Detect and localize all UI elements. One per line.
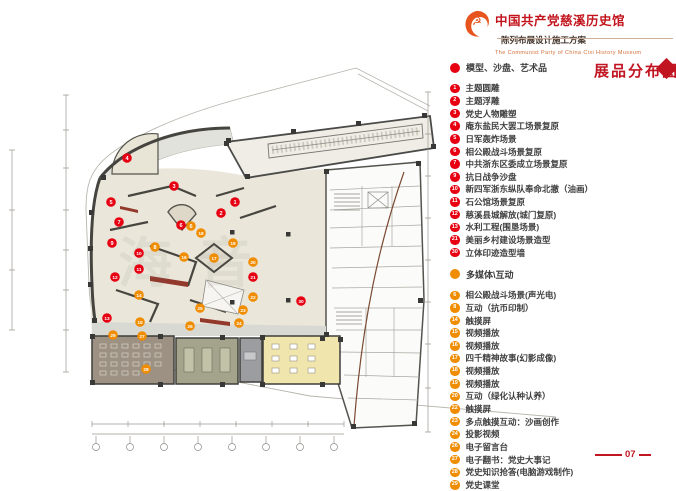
- plan-marker-13: 13: [102, 313, 112, 323]
- legend-item: 22触摸屏: [450, 403, 676, 416]
- legend-item: 18视频播放: [450, 365, 676, 378]
- plan-marker-29: 29: [108, 330, 118, 340]
- svg-text:27: 27: [139, 334, 145, 340]
- plan-marker-23: 23: [238, 305, 248, 315]
- page-title: 中国共产党慈溪历史馆: [495, 14, 625, 28]
- svg-text:20: 20: [250, 260, 256, 266]
- svg-text:15: 15: [137, 320, 143, 326]
- legend-item-badge: 18: [450, 366, 460, 376]
- legend-item-label: 四千精神故事(幻影成像): [466, 352, 557, 364]
- plan-marker-24: 24: [234, 318, 244, 328]
- legend-item-label: 庵东盐民大罢工场景复原: [466, 120, 560, 132]
- legend-item-badge: 8: [450, 303, 460, 313]
- legend-item-badge: 26: [450, 442, 460, 452]
- legend-item-label: 电子留言台: [466, 441, 509, 453]
- plan-marker-27: 27: [137, 331, 147, 341]
- legend-item-label: 互动（抗币印制）: [466, 302, 534, 314]
- legend-group-label: 模型、沙盘、艺术品: [466, 61, 547, 74]
- legend-item-label: 新四军浙东纵队奉命北撤（油画）: [466, 183, 594, 195]
- plan-marker-6: 6: [176, 220, 186, 230]
- svg-text:9: 9: [110, 241, 113, 247]
- legend-item: 6相公殿战斗场景(声光电): [450, 289, 676, 302]
- legend-item-label: 视频播放: [466, 365, 500, 377]
- legend-item: 8互动（抗币印制）: [450, 302, 676, 315]
- svg-text:11: 11: [136, 267, 141, 273]
- legend-item: 11石公馆场景复原: [450, 196, 676, 209]
- party-flame-emblem-icon: ☭: [462, 10, 492, 38]
- plan-marker-15: 15: [135, 317, 145, 327]
- legend-group-dot-icon: [450, 269, 460, 279]
- legend-item-label: 互动（绿化认种认养）: [466, 390, 551, 402]
- plan-marker-16: 16: [179, 252, 189, 262]
- legend-item: 17四千精神故事(幻影成像): [450, 352, 676, 365]
- legend-item-label: 党史课堂: [466, 479, 500, 491]
- legend-item: 6相公殿战斗场景复原: [450, 145, 676, 158]
- legend-item-badge: 17: [450, 354, 460, 364]
- plan-marker-25: 25: [195, 303, 205, 313]
- plan-marker-17: 17: [209, 253, 219, 263]
- plan-marker-5: 5: [106, 197, 116, 207]
- legend-item: 19视频播放: [450, 377, 676, 390]
- svg-text:29: 29: [110, 333, 116, 339]
- svg-text:22: 22: [250, 295, 256, 301]
- legend-item-label: 视频播放: [466, 327, 500, 339]
- legend-item: 16视频播放: [450, 340, 676, 353]
- svg-text:12: 12: [112, 275, 118, 281]
- legend-item-badge: 12: [450, 210, 460, 220]
- plan-marker-30: 30: [296, 296, 306, 306]
- legend-item-badge: 5: [450, 134, 460, 144]
- svg-text:24: 24: [236, 321, 242, 327]
- svg-text:19: 19: [230, 241, 236, 247]
- svg-text:18: 18: [198, 231, 204, 237]
- legend-item-label: 美丽乡村建设场景造型: [466, 234, 551, 246]
- legend-item-label: 主题浮雕: [466, 95, 500, 107]
- plan-marker-20: 20: [248, 257, 258, 267]
- plan-marker-7: 7: [114, 217, 124, 227]
- plan-marker-14: 14: [134, 290, 144, 300]
- plan-marker-2: 2: [216, 208, 226, 218]
- svg-text:1: 1: [233, 200, 236, 206]
- legend-item-label: 中共浙东区委成立场景复原: [466, 158, 568, 170]
- svg-text:3: 3: [172, 184, 175, 190]
- header: ☭ 中国共产党慈溪历史馆陈列布展设计施工方案 The Communist Par…: [462, 10, 676, 56]
- legend-item: 13水利工程(围垦场景): [450, 221, 676, 234]
- legend-item-label: 相公殿战斗场景(声光电): [466, 289, 557, 301]
- legend-item: 12慈溪县城解放(城门复原): [450, 208, 676, 221]
- legend-item-badge: 14: [450, 316, 460, 326]
- legend-item-label: 视频播放: [466, 378, 500, 390]
- legend-item-badge: 6: [450, 147, 460, 157]
- page-number-value: 07: [625, 450, 636, 460]
- legend-group-header: 模型、沙盘、艺术品: [450, 61, 676, 74]
- plan-marker-10: 10: [134, 248, 144, 258]
- legend-item-badge: 29: [450, 480, 460, 490]
- legend-item-badge: 9: [450, 172, 460, 182]
- legend-group-dot-icon: [450, 63, 460, 73]
- plan-marker-12: 12: [110, 272, 120, 282]
- legend-item: 24投影视频: [450, 428, 676, 441]
- header-rule: [497, 38, 673, 39]
- legend: 模型、沙盘、艺术品1主题圆雕2主题浮雕3党史人物雕塑4庵东盐民大罢工场景复原5日…: [450, 61, 676, 491]
- legend-item-badge: 15: [450, 328, 460, 338]
- svg-text:21: 21: [250, 275, 256, 281]
- plan-marker-11: 11: [134, 264, 144, 274]
- legend-item: 29党史课堂: [450, 479, 676, 491]
- legend-item-label: 触摸屏: [466, 403, 492, 415]
- page-title-english: The Communist Party of China Cixi Histor…: [495, 50, 676, 56]
- legend-item: 3党史人物雕塑: [450, 107, 676, 120]
- legend-item: 1主题圆雕: [450, 82, 676, 95]
- legend-item-badge: 22: [450, 404, 460, 414]
- legend-item-badge: 16: [450, 341, 460, 351]
- svg-text:26: 26: [187, 324, 193, 330]
- svg-text:23: 23: [240, 308, 246, 314]
- svg-text:7: 7: [117, 220, 120, 226]
- plan-marker-26: 26: [185, 321, 195, 331]
- page-number: 07: [595, 450, 651, 460]
- legend-item-label: 抗日战争沙盘: [466, 171, 517, 183]
- legend-item-badge: 1: [450, 84, 460, 94]
- legend-item-label: 党史人物雕塑: [466, 108, 517, 120]
- legend-item: 23多点触摸互动：沙画创作: [450, 415, 676, 428]
- legend-item-badge: 23: [450, 417, 460, 427]
- legend-item: 5日军轰炸场景: [450, 133, 676, 146]
- legend-item-badge: 30: [450, 248, 460, 258]
- svg-text:13: 13: [104, 316, 110, 322]
- legend-item-badge: 6: [450, 291, 460, 301]
- legend-item-badge: 2: [450, 96, 460, 106]
- legend-item-badge: 11: [450, 197, 460, 207]
- plan-marker-19: 19: [228, 238, 238, 248]
- grid-bubbles: [93, 444, 338, 451]
- svg-text:6: 6: [189, 224, 192, 230]
- legend-item-label: 触摸屏: [466, 315, 492, 327]
- legend-item: 2主题浮雕: [450, 95, 676, 108]
- legend-item: 7中共浙东区委成立场景复原: [450, 158, 676, 171]
- legend-item-label: 多点触摸互动：沙画创作: [466, 416, 560, 428]
- plan-marker-6: 6: [186, 221, 196, 231]
- legend-item-label: 电子翻书：党史大事记: [466, 454, 551, 466]
- legend-item-badge: 21: [450, 235, 460, 245]
- svg-text:16: 16: [181, 255, 187, 261]
- plan-marker-1: 1: [230, 197, 240, 207]
- legend-item-badge: 27: [450, 455, 460, 465]
- plan-marker-9: 9: [107, 238, 117, 248]
- legend-item: 20互动（绿化认种认养）: [450, 390, 676, 403]
- plan-marker-28: 28: [141, 364, 151, 374]
- legend-item-badge: 20: [450, 392, 460, 402]
- legend-item-label: 党史知识抢答(电脑游戏制作): [466, 466, 574, 478]
- page-subtitle: 陈列布展设计施工方案: [501, 35, 586, 45]
- legend-item: 10新四军浙东纵队奉命北撤（油画）: [450, 183, 676, 196]
- svg-text:30: 30: [298, 299, 304, 305]
- legend-item-label: 相公殿战斗场景复原: [466, 146, 543, 158]
- svg-text:10: 10: [136, 251, 142, 257]
- legend-item-badge: 10: [450, 185, 460, 195]
- legend-item-label: 慈溪县城解放(城门复原): [466, 209, 557, 221]
- plan-marker-22: 22: [248, 292, 258, 302]
- svg-text:2: 2: [219, 211, 222, 217]
- plan-marker-4: 4: [122, 153, 132, 163]
- legend-item: 15视频播放: [450, 327, 676, 340]
- legend-item-badge: 24: [450, 430, 460, 440]
- legend-item-badge: 28: [450, 468, 460, 478]
- legend-item-label: 视频播放: [466, 340, 500, 352]
- legend-item-label: 石公馆场景复原: [466, 196, 526, 208]
- legend-item-badge: 4: [450, 121, 460, 131]
- legend-item: 14触摸屏: [450, 314, 676, 327]
- legend-item-label: 日军轰炸场景: [466, 133, 517, 145]
- legend-item-label: 投影视频: [466, 428, 500, 440]
- page-number-rule-right: [639, 454, 651, 456]
- svg-text:17: 17: [211, 256, 217, 262]
- legend-item-badge: 3: [450, 109, 460, 119]
- legend-item: 9抗日战争沙盘: [450, 170, 676, 183]
- page: { "header": { "title": "中国共产党慈溪历史馆", "su…: [0, 0, 676, 477]
- legend-item-badge: 13: [450, 223, 460, 233]
- svg-text:14: 14: [136, 293, 142, 299]
- page-number-rule-left: [595, 454, 622, 456]
- svg-text:8: 8: [153, 245, 156, 251]
- plan-marker-3: 3: [169, 181, 179, 191]
- legend-item: 4庵东盐民大罢工场景复原: [450, 120, 676, 133]
- plan-marker-8: 8: [150, 242, 160, 252]
- svg-text:6: 6: [179, 223, 182, 229]
- legend-item-badge: 7: [450, 159, 460, 169]
- svg-text:28: 28: [143, 367, 149, 373]
- legend-group-header: 多媒体\互动: [450, 268, 676, 281]
- svg-text:5: 5: [109, 200, 112, 206]
- legend-item: 21美丽乡村建设场景造型: [450, 234, 676, 247]
- legend-item-label: 主题圆雕: [466, 82, 500, 94]
- legend-item-label: 立体印迹造型墙: [466, 247, 526, 259]
- legend-item-label: 水利工程(围垦场景): [466, 221, 540, 233]
- legend-group-label: 多媒体\互动: [466, 268, 514, 281]
- legend-item: 30立体印迹造型墙: [450, 246, 676, 259]
- legend-item-badge: 19: [450, 379, 460, 389]
- plan-marker-21: 21: [248, 272, 258, 282]
- plan-marker-18: 18: [196, 228, 206, 238]
- svg-text:25: 25: [197, 306, 203, 312]
